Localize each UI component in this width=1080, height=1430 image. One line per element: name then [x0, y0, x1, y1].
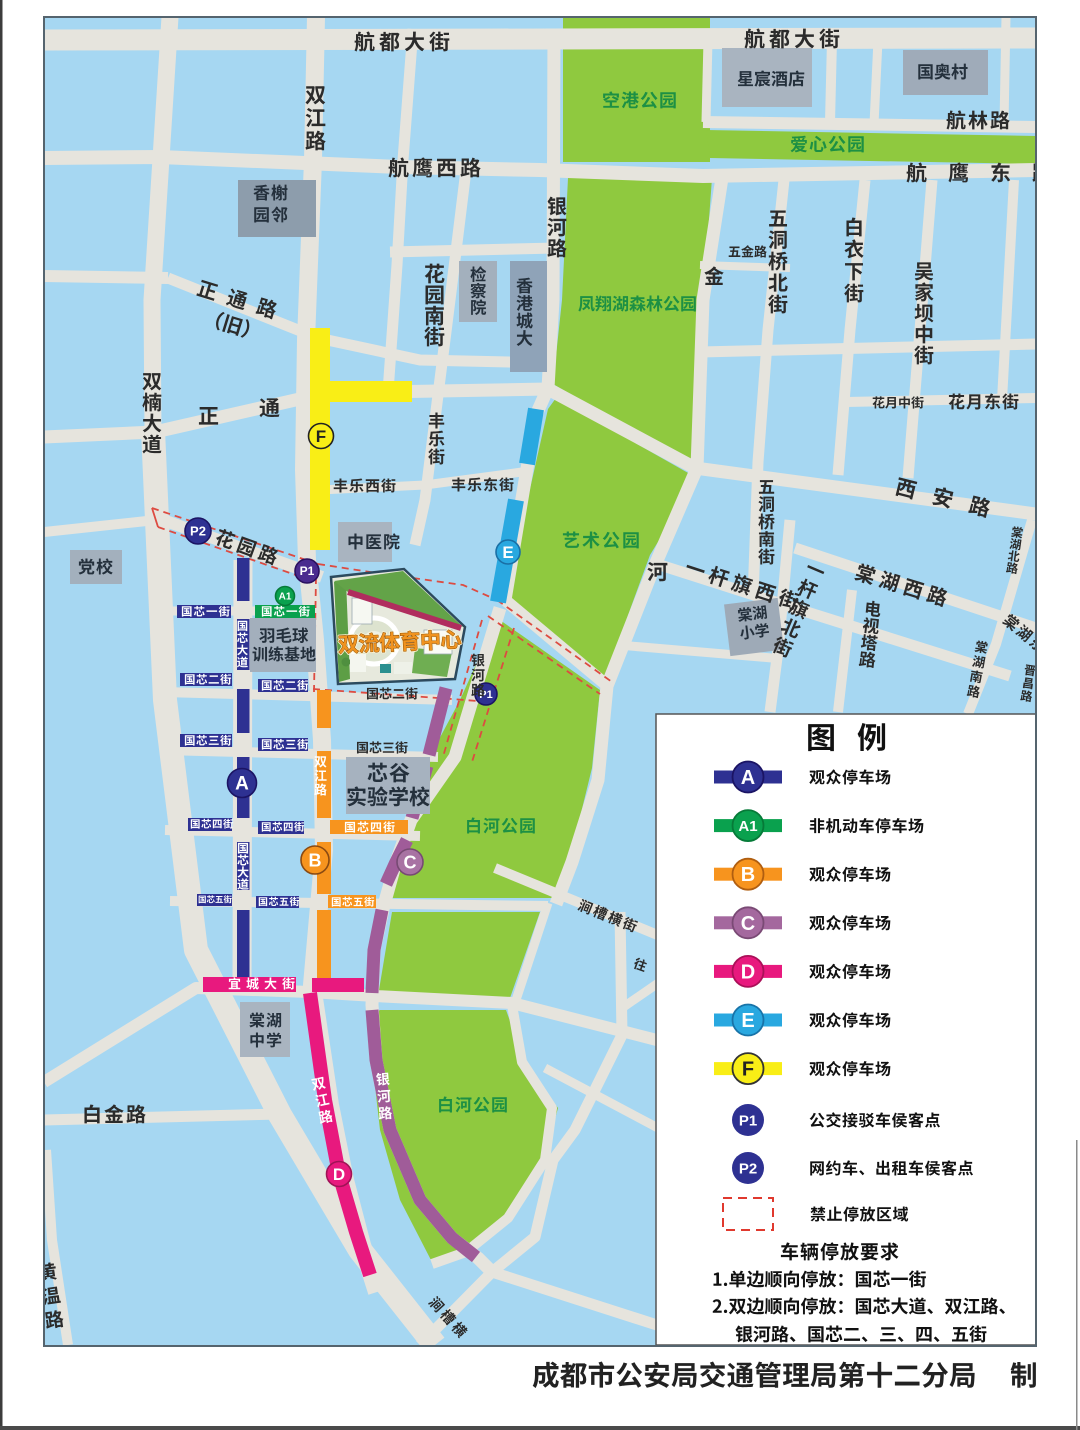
svg-text:E: E	[502, 543, 513, 562]
svg-text:A: A	[235, 774, 249, 795]
svg-text:B: B	[309, 850, 322, 870]
svg-text:A: A	[741, 767, 755, 789]
svg-text:E: E	[741, 1010, 754, 1032]
svg-text:B: B	[741, 864, 755, 886]
svg-text:P1: P1	[739, 1112, 757, 1129]
svg-text:D: D	[741, 961, 755, 983]
svg-text:C: C	[404, 852, 417, 872]
svg-text:P2: P2	[190, 524, 206, 539]
svg-text:C: C	[741, 913, 755, 935]
svg-text:D: D	[333, 1165, 345, 1184]
svg-text:P1: P1	[300, 564, 315, 578]
svg-text:P2: P2	[739, 1160, 757, 1177]
svg-text:A1: A1	[279, 592, 292, 603]
svg-text:F: F	[316, 427, 326, 446]
svg-text:F: F	[742, 1059, 754, 1081]
svg-text:A1: A1	[738, 818, 757, 835]
